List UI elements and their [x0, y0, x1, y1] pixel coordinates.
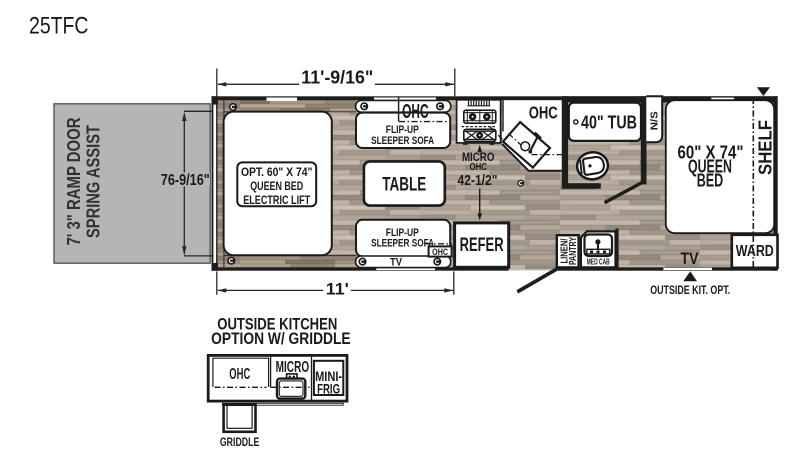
svg-text:MED CAB: MED CAB	[587, 257, 610, 266]
svg-text:25TFC: 25TFC	[29, 13, 89, 40]
svg-text:OHC: OHC	[529, 103, 558, 123]
svg-text:REFER: REFER	[460, 234, 504, 256]
svg-text:FLIP-UP: FLIP-UP	[386, 124, 419, 136]
svg-text:FRIG: FRIG	[317, 382, 340, 397]
svg-text:11': 11'	[326, 280, 349, 299]
svg-text:7' 3" RAMP DOOR: 7' 3" RAMP DOOR	[63, 118, 84, 246]
svg-text:OHC: OHC	[229, 366, 250, 383]
svg-text:42-1/2": 42-1/2"	[458, 173, 498, 189]
svg-text:N/S: N/S	[648, 111, 660, 130]
svg-text:SPRING ASSIST: SPRING ASSIST	[82, 124, 103, 238]
svg-text:OUTSIDE KIT. OPT.: OUTSIDE KIT. OPT.	[650, 283, 730, 297]
svg-text:GRIDDLE: GRIDDLE	[220, 435, 260, 449]
svg-text:TV: TV	[681, 249, 700, 268]
svg-text:11'-9/16": 11'-9/16"	[301, 68, 373, 88]
svg-text:OHC: OHC	[432, 246, 448, 257]
svg-text:SLEEPER SOFA: SLEEPER SOFA	[371, 135, 434, 147]
svg-text:40" TUB: 40" TUB	[581, 111, 637, 132]
svg-text:TV: TV	[390, 257, 403, 269]
svg-text:OPTION W/ GRIDDLE: OPTION W/ GRIDDLE	[211, 329, 351, 348]
svg-text:OHC: OHC	[469, 161, 487, 173]
svg-text:OPT. 60" X 74": OPT. 60" X 74"	[241, 165, 313, 179]
svg-text:ELECTRIC LIFT: ELECTRIC LIFT	[243, 193, 310, 207]
svg-text:OHC: OHC	[402, 101, 429, 123]
svg-text:BED: BED	[697, 170, 724, 190]
svg-text:SHELF: SHELF	[755, 120, 775, 175]
svg-text:PANTRY: PANTRY	[568, 237, 579, 265]
svg-text:QUEEN BED: QUEEN BED	[250, 179, 303, 193]
svg-text:SLEEPER SOFA: SLEEPER SOFA	[371, 238, 434, 250]
svg-text:WARD: WARD	[736, 243, 774, 260]
svg-text:76-9/16": 76-9/16"	[161, 172, 210, 189]
svg-text:TABLE: TABLE	[382, 175, 426, 196]
